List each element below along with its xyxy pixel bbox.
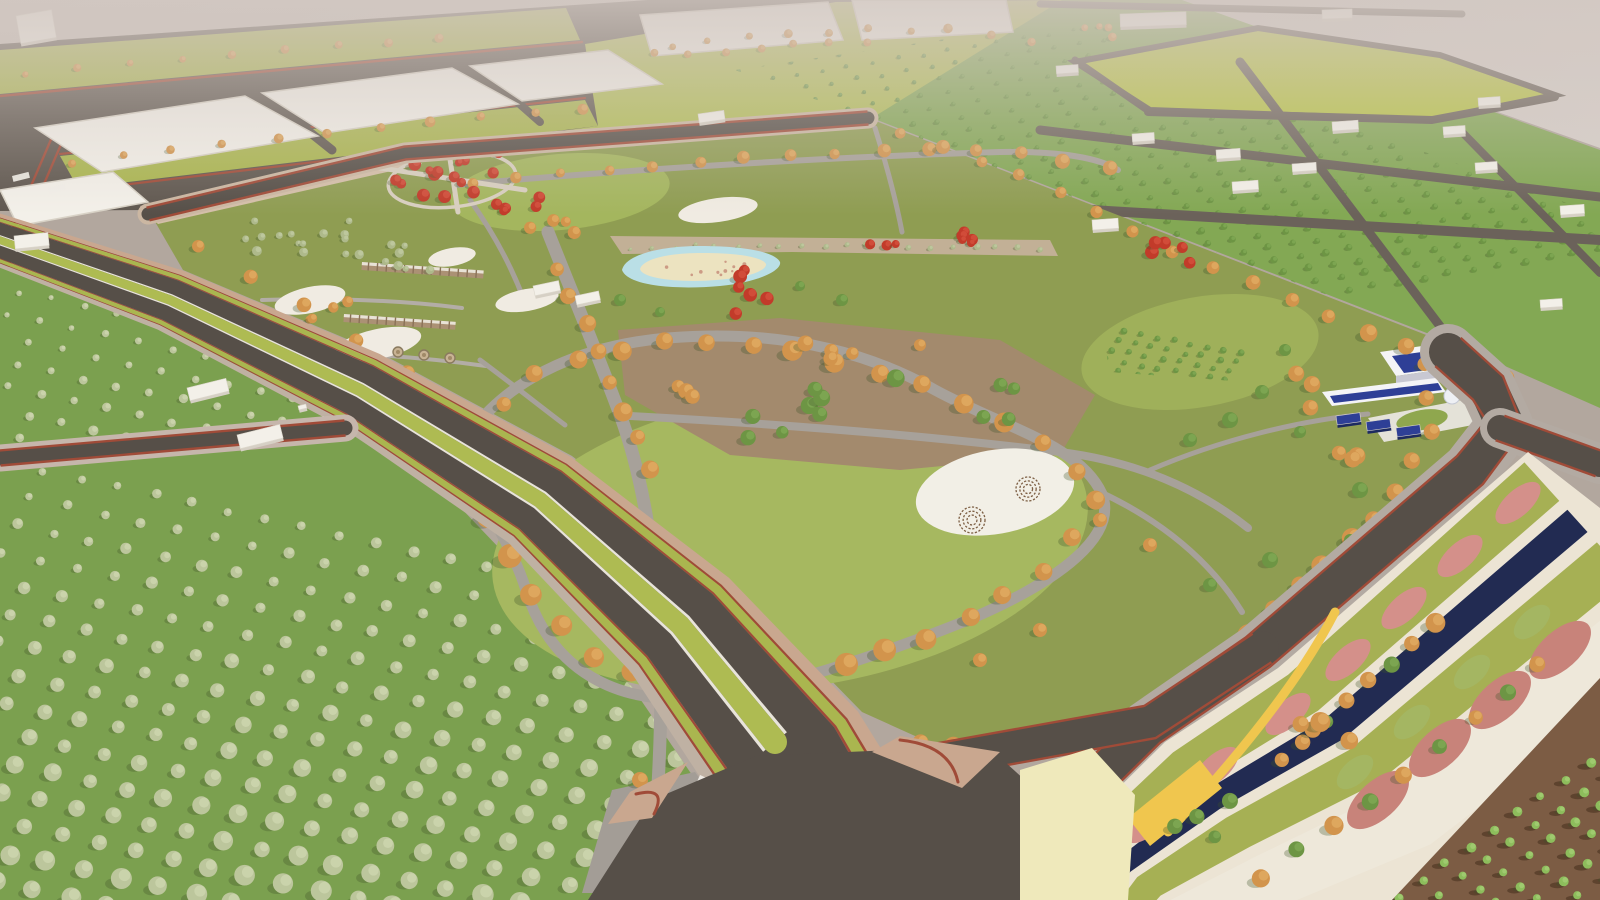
masterplan-render — [0, 0, 1600, 900]
scene-root — [0, 0, 1600, 900]
scene-viewport — [0, 0, 1600, 900]
